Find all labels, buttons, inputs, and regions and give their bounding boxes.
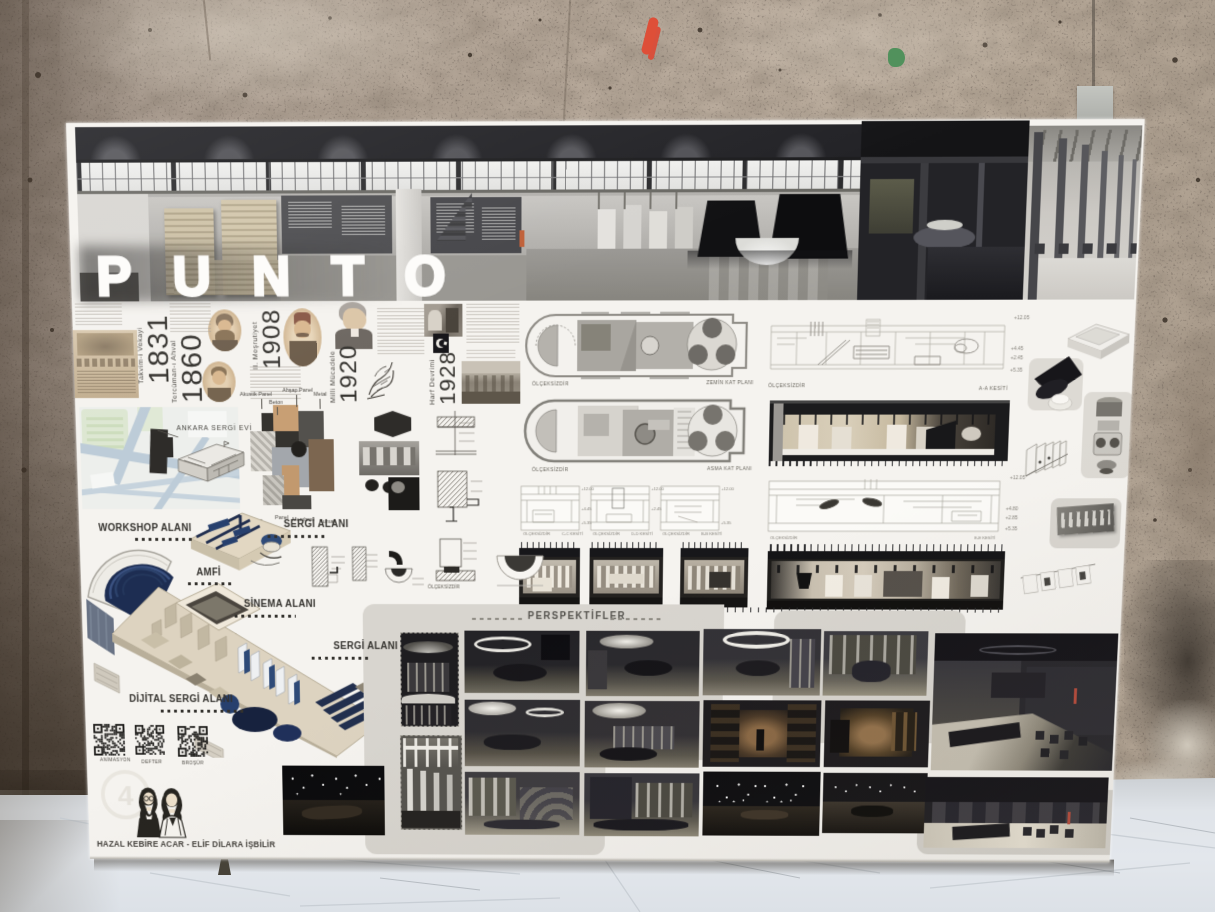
- svg-text:ÖLÇEKSİZDİR: ÖLÇEKSİZDİR: [662, 531, 689, 536]
- svg-text:+2.45: +2.45: [651, 506, 662, 511]
- svg-text:ÖLÇEKSİZDİR: ÖLÇEKSİZDİR: [523, 531, 550, 536]
- svg-text:B-B KESİTİ: B-B KESİTİ: [701, 531, 722, 536]
- svg-text:+5.35: +5.35: [721, 520, 732, 525]
- svg-text:E-E KESİTİ: E-E KESİTİ: [974, 535, 995, 540]
- svg-text:D-D KESİTİ: D-D KESİTİ: [631, 531, 652, 536]
- svg-text:ÖLÇEKSİZDİR: ÖLÇEKSİZDİR: [770, 535, 797, 540]
- svg-text:+5.35: +5.35: [581, 520, 592, 525]
- svg-text:+4.45: +4.45: [581, 506, 592, 511]
- svg-text:C-C KESİTİ: C-C KESİTİ: [562, 531, 583, 536]
- svg-text:+12.00: +12.00: [581, 486, 594, 491]
- svg-text:+12.00: +12.00: [721, 486, 734, 491]
- svg-text:+12.00: +12.00: [651, 486, 664, 491]
- svg-text:ÖLÇEKSİZDİR: ÖLÇEKSİZDİR: [593, 531, 620, 536]
